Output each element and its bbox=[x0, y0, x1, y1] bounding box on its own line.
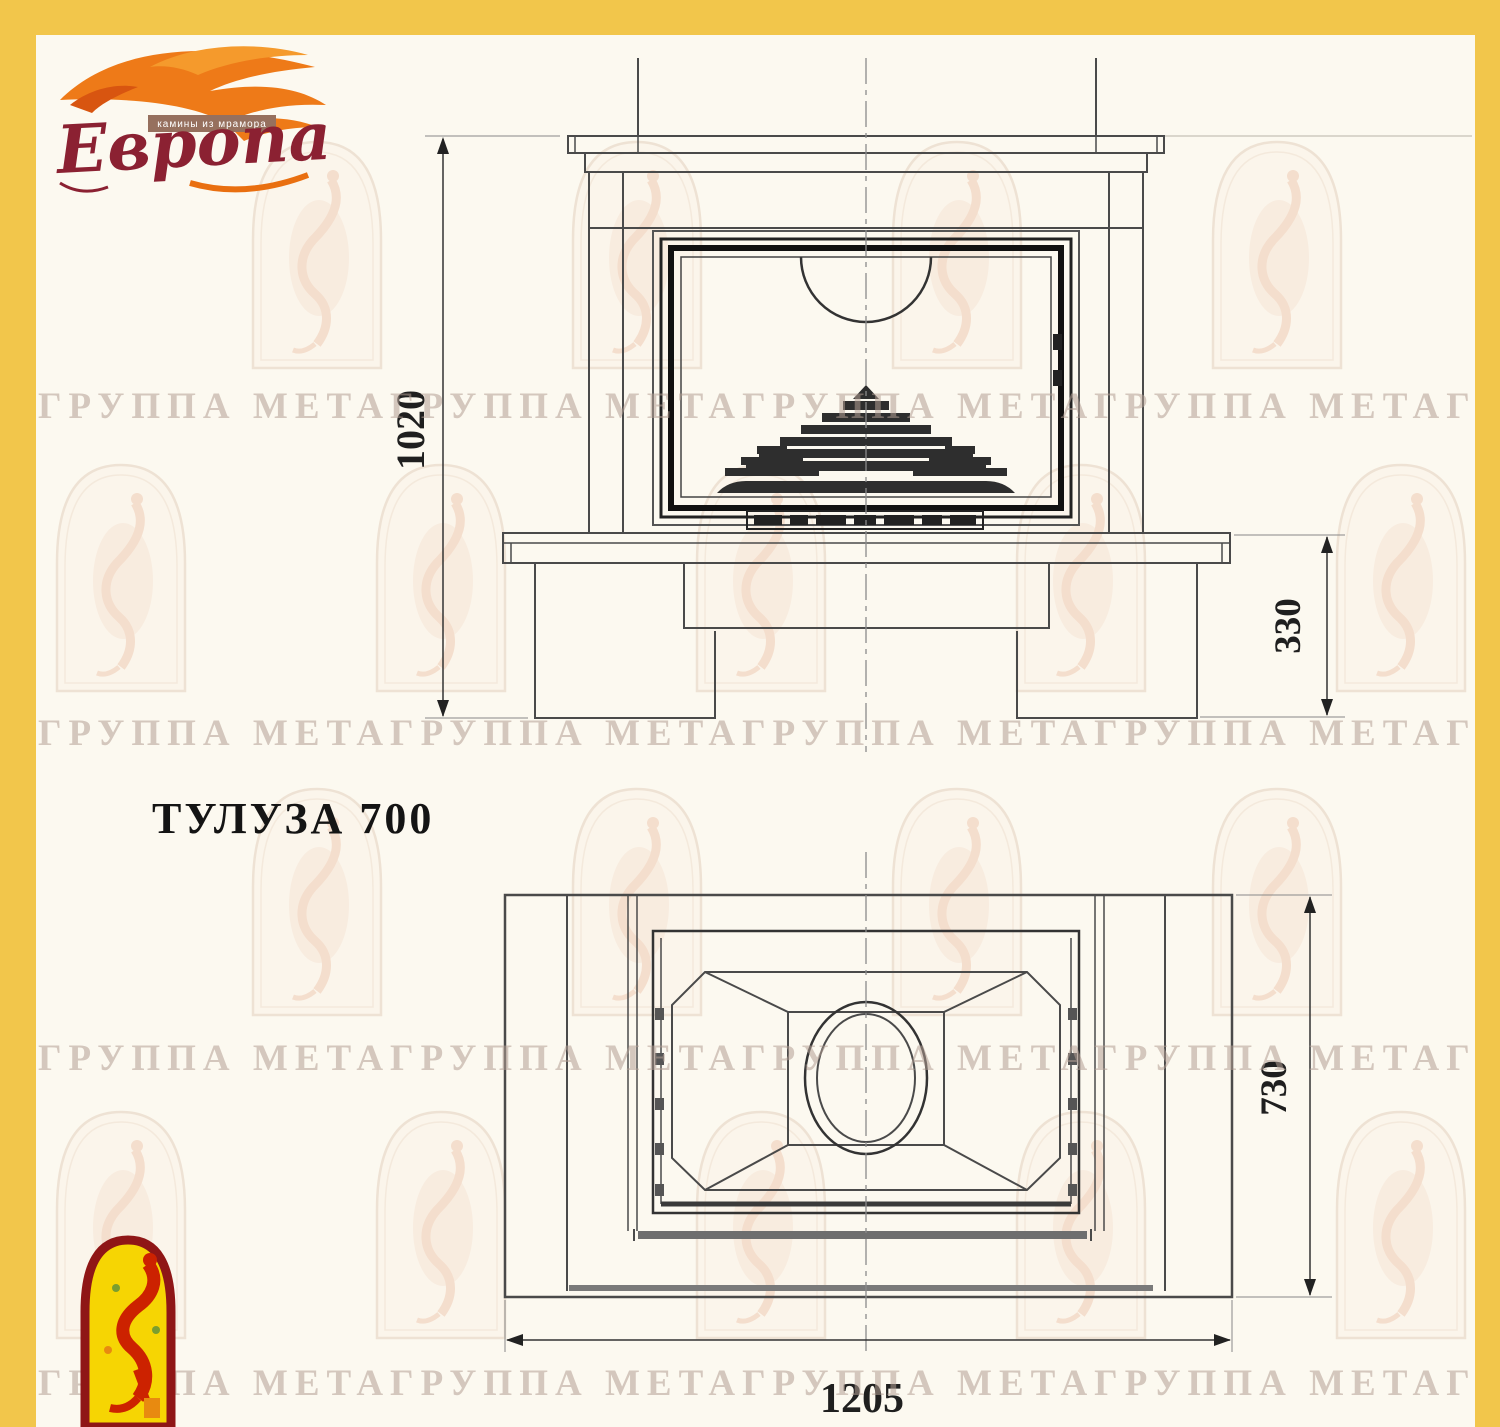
plan-view-drawing bbox=[505, 895, 1232, 1297]
depth-dimension: 730 bbox=[1254, 1060, 1295, 1116]
base-leg-left bbox=[535, 563, 715, 718]
base-leg-right bbox=[1017, 563, 1197, 718]
firebird-emblem-icon bbox=[70, 1230, 190, 1427]
frame-border-top bbox=[0, 0, 1500, 35]
frame-border-right bbox=[1475, 0, 1500, 1427]
page: 1020 330 730 1205 ГРУППА МЕТАГРУППА МЕТА… bbox=[0, 0, 1500, 1427]
base-height-dimension: 330 bbox=[1268, 598, 1309, 654]
vent-grille bbox=[747, 511, 983, 529]
brand-name: Европа bbox=[53, 97, 333, 189]
page-title: ТУЛУЗА 700 bbox=[152, 793, 434, 844]
frame-border-left bbox=[0, 0, 36, 1427]
front-height-dimension: 1020 bbox=[388, 390, 433, 470]
brand-logo: камины из мрамора Европа bbox=[30, 15, 340, 215]
width-dimension: 1205 bbox=[820, 1376, 904, 1422]
